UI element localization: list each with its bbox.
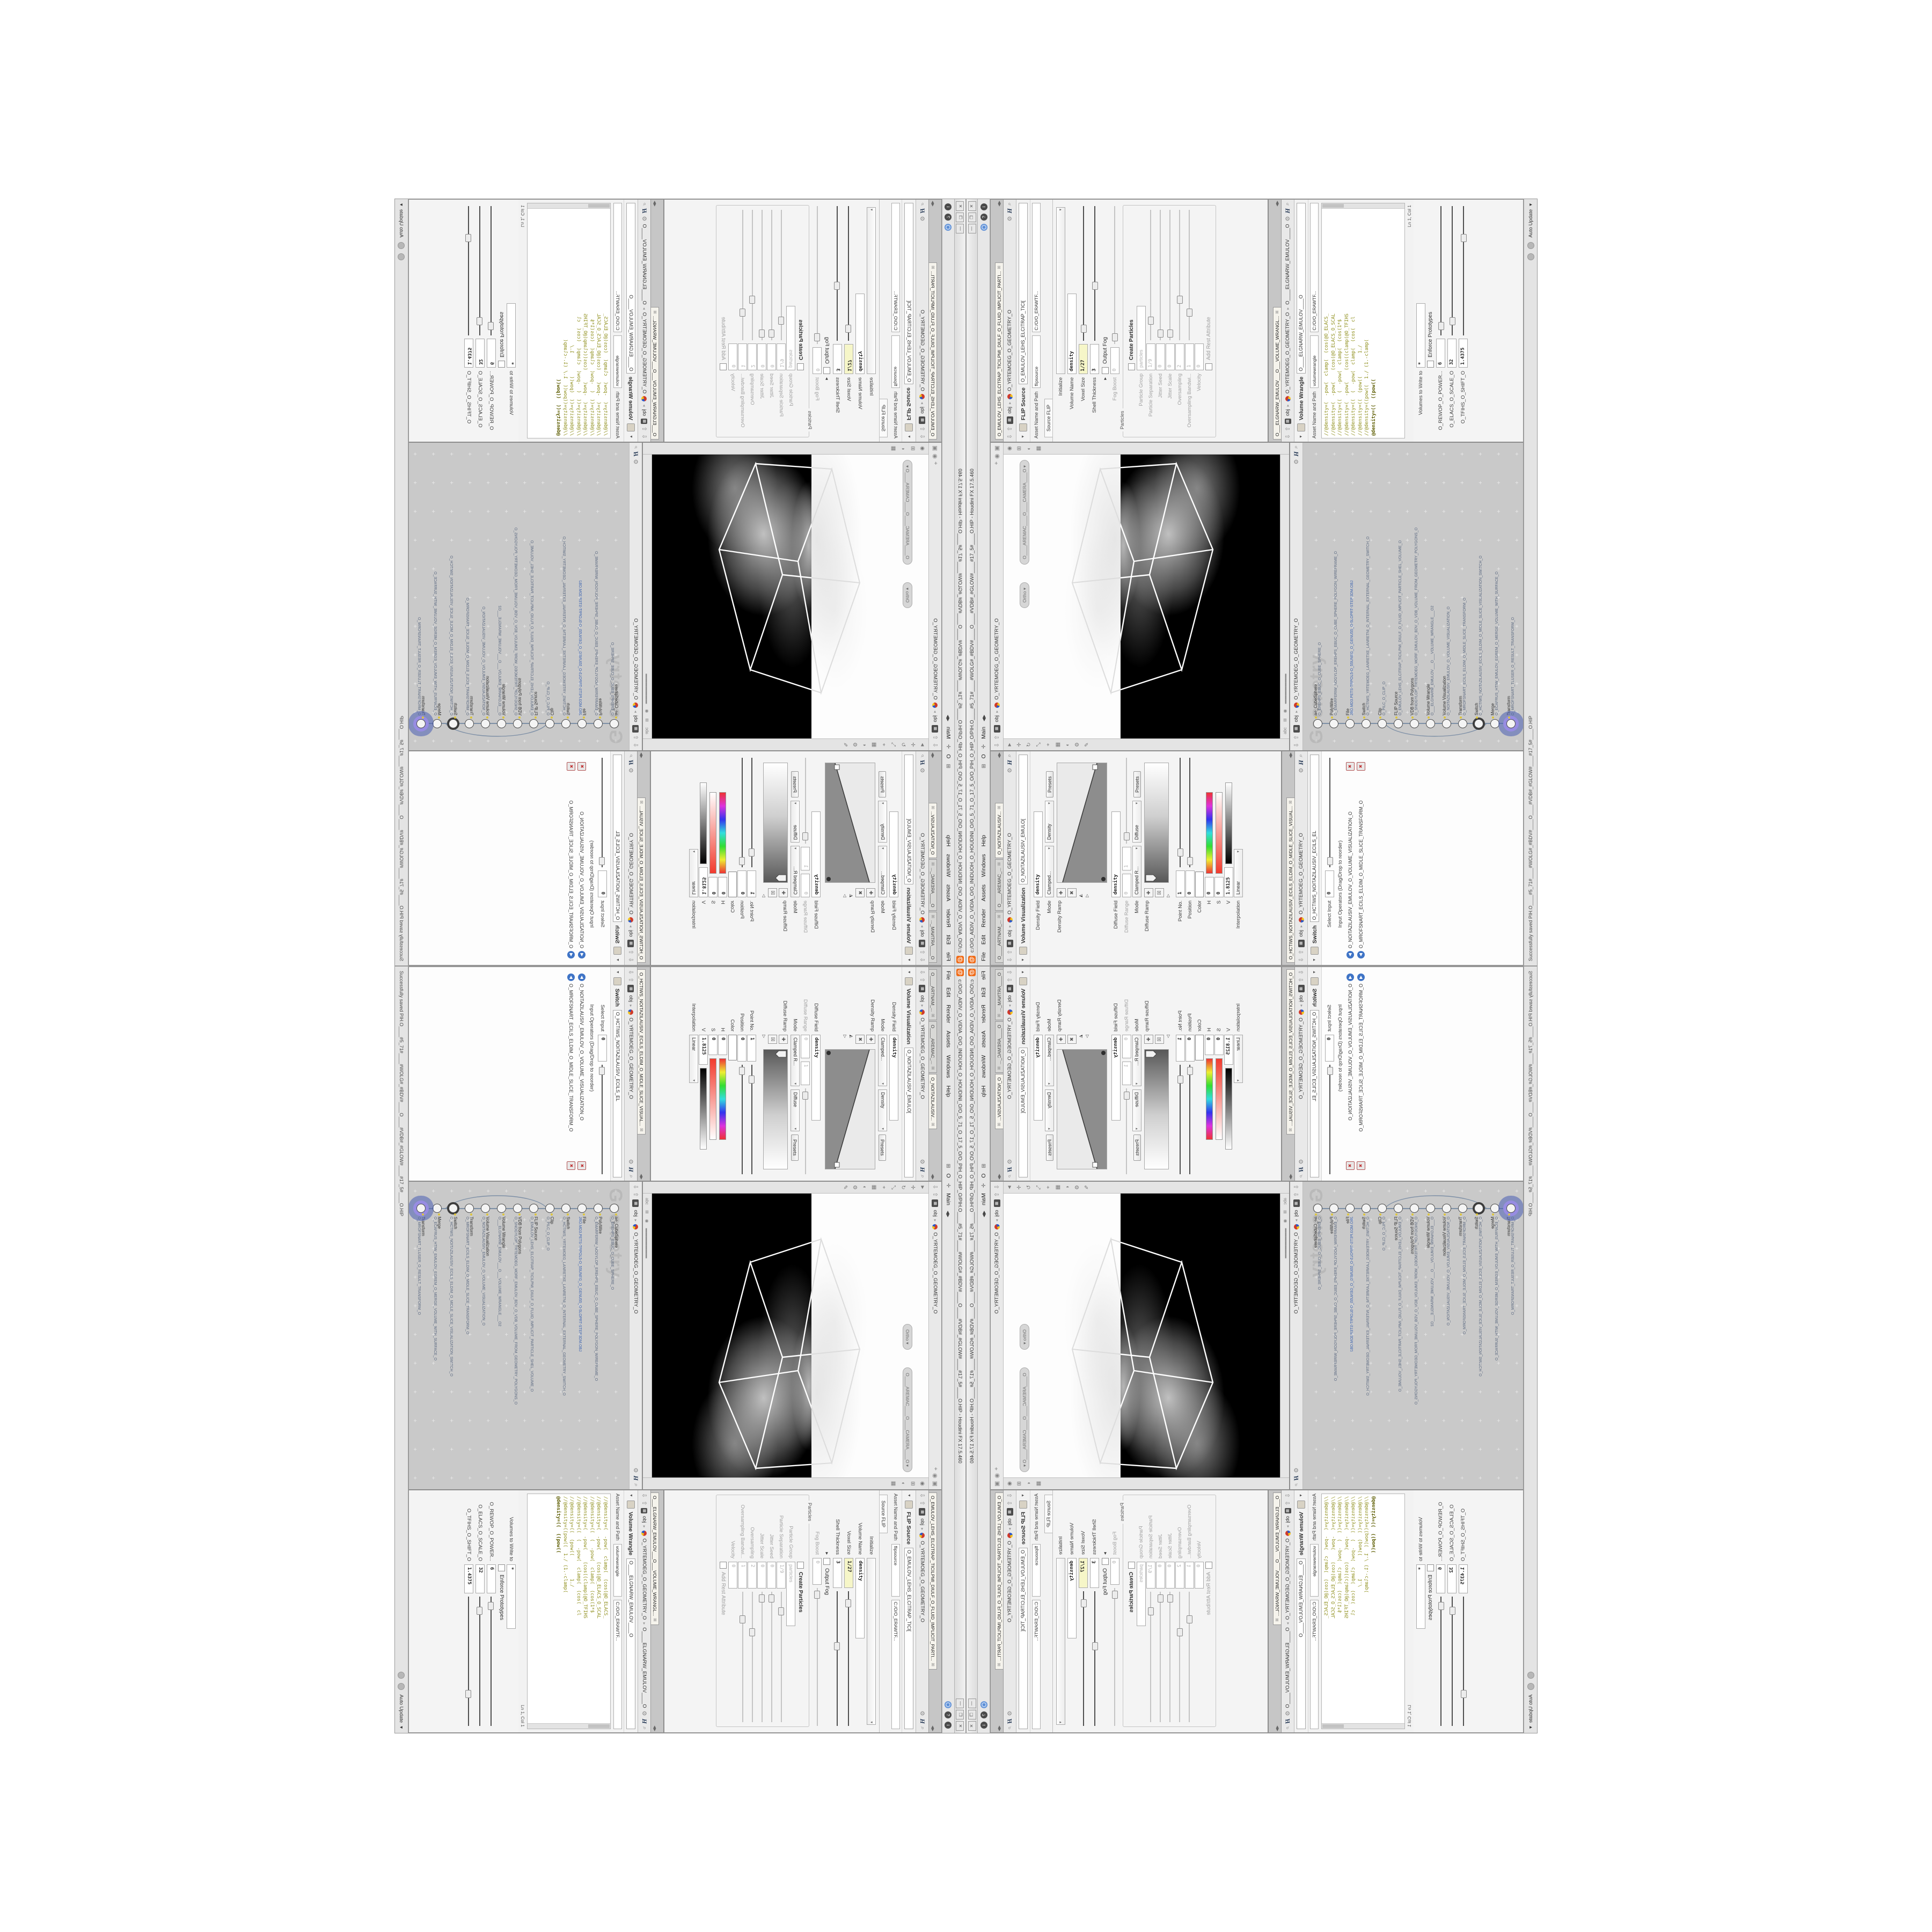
breadcrumb-root[interactable]: obj — [1007, 995, 1013, 1002]
diffuse-mode-dropdown[interactable]: Clamped R... — [791, 846, 800, 897]
draw-icon[interactable]: ✎ — [842, 1185, 848, 1189]
layout-icon[interactable]: ⊞ — [1016, 446, 1022, 450]
history-forward-icon[interactable]: ⇧ — [993, 735, 1000, 740]
diffuse-range-max-input[interactable]: 1 — [801, 847, 810, 870]
handles-icon[interactable]: ⌖ — [881, 1186, 887, 1189]
gear-icon[interactable]: ⚙ — [627, 1159, 634, 1165]
network-node[interactable]: Transform O_MROFSNART_ECILS_ELDIM_O_MIDL… — [1454, 445, 1470, 745]
network-node[interactable]: Merge O_ECAFRUS_HTIW_EMULOV_EGREM_O_MERG… — [1487, 1187, 1503, 1487]
network-node[interactable]: VDB from Polygons O_SNOGYLOP_YRTEMOEG_MO… — [1406, 1187, 1422, 1487]
color-swatch[interactable] — [728, 872, 737, 897]
voxel-size-input[interactable]: 1/27 — [1079, 1558, 1088, 1588]
tab-close-icon[interactable]: ☒ — [1289, 801, 1293, 804]
radar-icon[interactable]: ◉ — [993, 1473, 1000, 1479]
breadcrumb-geometry[interactable]: O_YRTEMOEG_O_GEOMETRY_O — [1007, 310, 1013, 391]
ortho-pill[interactable]: Ortho ▾ — [903, 582, 912, 608]
view-icon[interactable]: ◉ — [919, 1481, 925, 1486]
snap-icon[interactable]: ▦ — [871, 742, 877, 747]
density-field-input[interactable]: density — [1034, 1035, 1043, 1121]
breadcrumb-root[interactable]: obj — [919, 1518, 925, 1525]
shift-slider[interactable] — [466, 206, 472, 335]
power-slider[interactable] — [1438, 206, 1444, 335]
network-node[interactable]: Switch O_HCTIWS_YRTEMOEG_LANRETXE_LANRET… — [1358, 1187, 1374, 1487]
hue-input[interactable]: 0 — [1205, 1035, 1214, 1055]
shell-thickness-input[interactable]: 3 — [1090, 1558, 1099, 1588]
create-particles-checkbox[interactable] — [1128, 1562, 1135, 1569]
breadcrumb-wrangle[interactable]: O____ELGNARW_EMULOV____O — [1285, 1627, 1291, 1708]
jitter-scale-input[interactable]: 0 — [1166, 1562, 1175, 1589]
tab-close-icon[interactable]: ☒ — [931, 806, 935, 809]
diffuse-range-slider[interactable] — [802, 758, 809, 844]
scrollbar[interactable]: ▬▬▬▬▬▬▬ — [645, 1228, 650, 1258]
node-shape[interactable] — [1378, 1204, 1387, 1213]
menu-assets[interactable]: Assets — [980, 884, 987, 902]
tab-close-icon[interactable]: ☒ — [931, 862, 935, 866]
menu-assets[interactable]: Assets — [945, 1030, 952, 1048]
breadcrumb-geometry[interactable]: O_YRTEMOEG_O_GEOMETRY_O — [633, 1232, 639, 1314]
breadcrumb-geometry[interactable]: O_YRTEMOEG_O_GEOMETRY_O — [1285, 312, 1291, 394]
search-icon[interactable]: ⌕ — [919, 202, 926, 206]
handles-icon[interactable]: ⌖ — [1045, 1186, 1051, 1189]
oversampling-bandwidth-input[interactable]: 1 — [1185, 1562, 1194, 1589]
menu-edit[interactable]: Edit — [980, 935, 987, 945]
voxel-size-input[interactable]: 1/27 — [844, 1558, 853, 1588]
breadcrumb-root[interactable]: obj — [919, 407, 925, 414]
shell-thickness-slider[interactable] — [1092, 206, 1098, 341]
initialize-dropdown[interactable] — [1056, 1558, 1065, 1725]
input-operator-row[interactable]: ◀ O_NOITAZILAUSIV_EMULOV_O_VOLUME_VISUAL… — [576, 968, 587, 1177]
breadcrumb-root[interactable]: obj — [633, 1210, 639, 1217]
tab-volume-wrangle[interactable]: O___ELGNARW_EMULOV___O___VOLUME_WRANGL..… — [651, 307, 659, 440]
minimize-button[interactable]: — — [956, 224, 964, 233]
breadcrumb-geometry[interactable]: O_YRTEMOEG_O_GEOMETRY_O — [1007, 1018, 1013, 1099]
radar-icon[interactable] — [980, 224, 987, 231]
hue-gradient-slider[interactable] — [720, 792, 727, 874]
gear-icon[interactable]: ⚙ — [1284, 216, 1291, 222]
node-shape[interactable] — [1442, 719, 1451, 728]
power-slider[interactable] — [1438, 1597, 1444, 1726]
position-slider[interactable] — [739, 758, 745, 867]
scrollbar[interactable]: ▬▬▬▬▬▬▬ — [645, 674, 650, 704]
breadcrumb-root[interactable]: obj — [1298, 995, 1304, 1002]
tab-mantra[interactable]: O____ARTNAM_...☒ — [995, 969, 1003, 1020]
network-node[interactable]: PolyWire O_EMARFERIW_NOGYLOP_EREHPS_EBUC… — [1326, 1187, 1342, 1487]
density-ramp-widget[interactable] — [1057, 763, 1107, 883]
diffuse-presets-dropdown[interactable]: Diffuse — [791, 801, 800, 843]
search-icon[interactable]: ⌕ — [1006, 202, 1013, 206]
tab-scroll-arrows[interactable]: ◀▶ — [931, 1725, 935, 1731]
input-operator-row[interactable]: ◀ O_NOITAZILAUSIV_EMULOV_O_VOLUME_VISUAL… — [1345, 755, 1356, 964]
search-icon[interactable]: ⌕ — [641, 1726, 648, 1730]
ramp-add-point-button[interactable]: ✚ — [1144, 888, 1153, 897]
menu-help[interactable]: Help — [980, 835, 987, 847]
network-node[interactable]: Transform O_MROFSNART_TLUSER_O_RESULT_TR… — [1503, 445, 1519, 745]
search-icon[interactable]: ⌕ — [632, 1483, 639, 1487]
oversampling-slider[interactable] — [1176, 1592, 1183, 1722]
power-input[interactable]: 6 — [487, 1564, 496, 1593]
tab-mantra[interactable]: O____ARTNAM_...☒ — [995, 912, 1003, 963]
scale-slider[interactable] — [477, 1597, 484, 1726]
breadcrumb-geometry[interactable]: O_YRTEMOEG_O_GEOMETRY_O — [1285, 1539, 1291, 1620]
output-fog-checkbox[interactable] — [1102, 1558, 1109, 1565]
asset-name-field[interactable]: volumewrangle — [1310, 1544, 1319, 1597]
history-back-icon[interactable]: ⇩ — [632, 1184, 639, 1189]
network-node[interactable]: Switch O_HCTIWS_NOITAZILAUSIV_ECILS_ELDI… — [1470, 1187, 1487, 1487]
tab-close-icon[interactable]: ☒ — [997, 266, 1001, 269]
node-shape[interactable] — [530, 1204, 539, 1213]
history-forward-icon[interactable]: ⇧ — [641, 427, 648, 431]
draw-icon[interactable]: ✎ — [842, 742, 848, 747]
tab-scroll-arrows[interactable]: ◀▶ — [653, 1725, 657, 1731]
voxel-size-slider[interactable] — [1080, 206, 1087, 341]
tab-close-icon[interactable]: ☒ — [931, 1123, 935, 1126]
info-icon[interactable]: i — [945, 203, 952, 210]
grid-icon[interactable]: ▦ — [890, 1481, 896, 1486]
search-icon[interactable]: ⌕ — [919, 1726, 926, 1730]
history-back-icon[interactable]: ⇩ — [932, 743, 939, 748]
diffuse-range-max-input[interactable]: 1 — [801, 1062, 810, 1085]
scale-input[interactable]: 32 — [1447, 339, 1457, 368]
network-node[interactable]: Transform O_MROFSNART_TLUSER_O_RESULT_TR… — [1503, 1187, 1519, 1487]
ramp-delete-point-button[interactable]: ☒ — [1155, 1035, 1164, 1044]
tab-close-icon[interactable]: ☒ — [1275, 1618, 1279, 1621]
jitter-scale-slider[interactable] — [759, 210, 765, 340]
grid-icon[interactable]: ▦ — [890, 446, 896, 451]
input-operator-row[interactable]: ◀ O_MROFSNART_ECILS_ELDIM_O_MIDLE_SLICE_… — [566, 755, 576, 964]
node-name-field[interactable]: O_HCTIWS_NOITAZILAUSIV_ECILS_EL — [613, 1010, 622, 1177]
node-name-field[interactable]: O____ELGNARW_EMULOV____O — [1297, 1558, 1306, 1729]
breadcrumb-geometry[interactable]: O_YRTEMOEG_O_GEOMETRY_O — [1298, 1018, 1304, 1099]
history-forward-icon[interactable]: ⇧ — [1284, 1501, 1291, 1505]
tab-volume-wrangle[interactable]: O___ELGNARW_EMULOV___O___VOLUME_WRANGL..… — [1273, 307, 1281, 440]
ramp-flip-icon[interactable]: ◭ — [849, 888, 854, 897]
density-field-input[interactable]: density — [889, 811, 898, 897]
gear-icon[interactable]: ⚙ — [1006, 1711, 1013, 1716]
input-link-icon[interactable]: ◀ — [578, 951, 586, 958]
history-back-icon[interactable]: ⇩ — [993, 1184, 1000, 1189]
breadcrumb-wrangle[interactable]: O____ELGNARW_EMULOV____O — [1285, 224, 1291, 304]
network-node[interactable]: Merge O_ECAFRUS_HTIW_EMULOV_EGREM_O_MERG… — [1487, 445, 1503, 745]
node-shape[interactable] — [1442, 1204, 1451, 1213]
viewport-stage[interactable]: O____AREMAC____O____CAMERA____O ▾ Ortho … — [1004, 1194, 1289, 1477]
initialize-dropdown[interactable] — [867, 1558, 876, 1725]
ramp-expand-icon[interactable]: ▷ — [843, 888, 847, 897]
eye-icon[interactable]: ◉ — [645, 709, 650, 713]
tab-visualization[interactable]: O_NOITAZILAUSIV...☒ — [995, 803, 1003, 858]
shell-thickness-input[interactable]: 3 — [833, 1558, 842, 1588]
scrollbar[interactable]: ▬▬▬▬▬▬▬ — [1283, 1228, 1287, 1258]
tab-switch[interactable]: O_HCTIWS_NOITAZILAUSIV_ECILS_ELDIM_O_MID… — [638, 797, 646, 963]
oversampling-bandwidth-slider[interactable] — [740, 1592, 746, 1722]
voxel-size-slider[interactable] — [846, 1591, 852, 1726]
power-input[interactable]: 6 — [1436, 339, 1445, 368]
density-ramp-widget[interactable] — [825, 763, 875, 883]
breadcrumb-geometry[interactable]: O_YRTEMOEG_O_GEOMETRY_O — [641, 312, 647, 394]
tab-camera[interactable]: O____AREMAC_...☒ — [929, 859, 937, 911]
menu-assets[interactable]: Assets — [945, 884, 952, 902]
velocity-input[interactable]: 0 — [729, 343, 738, 370]
breadcrumb-root[interactable]: obj — [633, 715, 639, 722]
node-name-field[interactable]: O_NOITAZILAUSIV_EMULO[ — [1019, 755, 1028, 884]
asset-path-field[interactable]: C:/O/O_ERAWTF... — [1310, 203, 1319, 332]
code-scrollbar[interactable] — [1322, 203, 1404, 209]
diffuse-range-slider[interactable] — [802, 1088, 809, 1174]
input-link-icon[interactable]: ◀ — [578, 974, 586, 981]
color-swatch[interactable] — [1195, 872, 1204, 897]
asset-path-field[interactable]: C:/O/O_ERAWTF... — [1310, 1600, 1319, 1729]
voxel-size-slider[interactable] — [1080, 1591, 1087, 1726]
jitter-scale-input[interactable]: 0 — [758, 343, 767, 370]
shift-input[interactable]: 1.4375 — [1459, 1564, 1468, 1593]
search-icon[interactable]: ⌕ — [627, 1175, 634, 1178]
close-button[interactable]: ✕ — [956, 1721, 964, 1731]
breadcrumb-root[interactable]: obj — [1285, 1516, 1291, 1523]
pin-icon[interactable]: ⌖ — [993, 462, 1000, 465]
volume-name-input[interactable]: density — [1067, 1558, 1077, 1638]
node-name-field[interactable]: O____ELGNARW_EMULOV____O — [626, 203, 635, 374]
diffuse-field-input[interactable]: density — [811, 811, 821, 897]
velocity-input[interactable]: 0 — [1195, 1562, 1204, 1589]
ramp-expand-icon[interactable]: ▷ — [762, 888, 766, 897]
fog-boost-input[interactable]: 0 — [1110, 347, 1119, 374]
camera-menu-pill[interactable]: O____AREMAC____O____CAMERA____O ▾ — [1020, 460, 1029, 565]
tab-scroll-arrows[interactable]: ◀▶ — [653, 201, 657, 207]
history-back-icon[interactable]: ⇩ — [919, 434, 926, 439]
density-presets-button[interactable]: Presets — [1046, 771, 1053, 797]
rotate-icon[interactable]: ↻ — [900, 1185, 906, 1189]
radar-icon[interactable]: ◉ — [932, 1473, 939, 1479]
search-icon[interactable]: ⌕ — [1298, 754, 1305, 757]
node-shape[interactable] — [562, 719, 571, 728]
tab-camera[interactable]: O____AREMAC_...☒ — [995, 1021, 1003, 1073]
oversampling-bandwidth-slider[interactable] — [740, 210, 746, 340]
asset-path-field[interactable]: C:/O/O_ERAWTF... — [1032, 203, 1041, 332]
code-scrollbar[interactable] — [528, 1723, 610, 1729]
select-icon[interactable]: ► — [1007, 1185, 1013, 1190]
tab-scroll-arrows[interactable]: ◀▶ — [639, 1174, 643, 1180]
tab-scroll-arrows[interactable]: ◀▶ — [997, 201, 1001, 207]
scale-input[interactable]: 32 — [475, 1564, 485, 1593]
select-input-slider[interactable] — [599, 1065, 606, 1174]
node-shape[interactable] — [1345, 1204, 1355, 1213]
cook-mode-selector[interactable]: Auto Update ▾ — [1528, 203, 1534, 238]
scale-icon[interactable]: ⤡ — [1036, 1185, 1042, 1190]
shade-icon[interactable]: ◐ — [861, 1185, 867, 1189]
vex-code-editor[interactable]: //@density=( -pow( clamp( (cos(@O_ELACS_… — [527, 1494, 611, 1729]
breadcrumb-root[interactable]: obj — [1293, 1210, 1299, 1217]
fog-boost-slider[interactable] — [814, 1588, 821, 1726]
menu-help[interactable]: Help — [945, 1086, 952, 1097]
shell-thickness-slider[interactable] — [835, 206, 841, 341]
breadcrumb-geometry[interactable]: O_YRTEMOEG_O_GEOMETRY_O — [919, 310, 925, 391]
ramp-delete-point-button[interactable]: ✖ — [855, 1035, 865, 1044]
history-back-icon[interactable]: ⇩ — [1006, 434, 1013, 439]
history-forward-icon[interactable]: ⇧ — [1284, 427, 1291, 431]
hue-input[interactable]: 0 — [719, 877, 728, 897]
network-node[interactable]: Volume Wrangle O___ELGNARW_EMULOV___O___… — [494, 1187, 510, 1487]
history-back-icon[interactable]: ⇩ — [919, 957, 926, 962]
asset-path-field[interactable]: C:/O/O_ERAWTF... — [613, 203, 622, 332]
diffuse-range-max-input[interactable]: 1 — [1122, 1062, 1131, 1085]
menu-file[interactable]: File — [945, 952, 952, 961]
breadcrumb-wrangle[interactable]: O____ELGNARW_EMULOV____O — [641, 1627, 647, 1708]
menu-file[interactable]: File — [945, 971, 952, 980]
shift-slider[interactable] — [1460, 1597, 1467, 1726]
jitter-seed-slider[interactable] — [769, 210, 775, 340]
desktop-tab-main[interactable]: Main — [980, 1193, 987, 1205]
diffuse-presets-button[interactable]: Presets — [792, 771, 799, 797]
node-shape[interactable] — [481, 1204, 491, 1213]
select-input-field[interactable]: 0 — [598, 870, 607, 897]
tab-close-icon[interactable]: ☒ — [653, 1618, 657, 1621]
rotate-icon[interactable]: ↻ — [1026, 1185, 1032, 1189]
history-forward-icon[interactable]: ⇧ — [1293, 1192, 1300, 1197]
history-forward-icon[interactable]: ⇧ — [993, 1192, 1000, 1197]
cube-icon[interactable]: ▣ — [993, 445, 1000, 451]
network-node[interactable]: Transform O_MROFSNART_ECILS_ELDIM_O_MIDL… — [462, 445, 478, 745]
network-node[interactable]: PolyWire O_EMARFERIW_NOGYLOP_EREHPS_EBUC… — [1326, 445, 1342, 745]
asset-name-field[interactable]: volumewrangle — [1310, 335, 1319, 388]
ramp-delete-point-button[interactable]: ✖ — [1067, 888, 1077, 897]
tab-flip-source[interactable]: O_EMULOV_LEHS_ELCITRAP_TICILPMI_DIULF_O_… — [929, 1492, 937, 1670]
add-rest-attribute-checkbox[interactable] — [1205, 1562, 1212, 1569]
breadcrumb-geometry[interactable]: O_YRTEMOEG_O_GEOMETRY_O — [932, 618, 938, 700]
particle-group-input[interactable]: particles — [787, 306, 796, 370]
node-shape[interactable] — [1474, 1204, 1483, 1213]
asset-name-field[interactable]: volumewrangle — [613, 1544, 622, 1597]
asset-name-field[interactable]: flipsource — [891, 335, 900, 388]
node-name-field[interactable]: O_HCTIWS_NOITAZILAUSIV_ECILS_EL — [613, 755, 622, 922]
snapshot-icon[interactable]: ◐ — [900, 447, 906, 450]
jitter-scale-input[interactable]: 0 — [1166, 343, 1175, 370]
ramp-flip-icon[interactable]: ◭ — [849, 1035, 854, 1044]
menu-windows[interactable]: Windows — [980, 854, 987, 877]
input-link-icon[interactable]: ◀ — [1357, 951, 1365, 958]
breadcrumb-geometry[interactable]: O_YRTEMOEG_O_GEOMETRY_O — [628, 833, 634, 914]
gear-icon[interactable]: ⚙ — [1298, 1159, 1305, 1165]
cook-mode-selector[interactable]: Auto Update ▾ — [399, 1694, 405, 1729]
history-back-icon[interactable]: ⇩ — [1006, 957, 1013, 962]
tab-flip-source[interactable]: O_EMULOV_LEHS_ELCITRAP_TICILPMI_DIULF_O_… — [995, 1492, 1003, 1670]
diffuse-presets-dropdown[interactable]: Diffuse — [791, 1089, 800, 1131]
jitter-seed-input[interactable]: 0 — [767, 343, 777, 370]
jitter-seed-slider[interactable] — [1157, 1592, 1163, 1722]
select-input-slider[interactable] — [1327, 758, 1333, 867]
output-fog-checkbox[interactable] — [824, 367, 831, 374]
asset-path-field[interactable]: C:/O/O_ERAWTF... — [613, 1600, 622, 1729]
viewport-stage[interactable]: O____AREMAC____O____CAMERA____O ▾ Ortho … — [643, 455, 928, 738]
diffuse-range-min-input[interactable]: 0 — [801, 1035, 810, 1058]
tab-volume-wrangle[interactable]: O___ELGNARW_EMULOV___O___VOLUME_WRANGL..… — [1273, 1492, 1281, 1625]
network-node[interactable]: ae_CubeSphere O_EREHPS_EBUC_O_CUBE_SPHER… — [606, 445, 623, 745]
point-no-input[interactable]: 1 — [1176, 870, 1185, 897]
input-link-icon[interactable]: ◀ — [567, 951, 575, 958]
scale-input[interactable]: 32 — [1447, 1564, 1457, 1593]
node-shape[interactable] — [1394, 719, 1403, 728]
gear-icon[interactable]: ⚙ — [632, 459, 639, 465]
oversampling-input[interactable]: 2 — [748, 343, 757, 370]
node-name-field[interactable]: O_NOITAZILAUSIV_EMULO[ — [904, 755, 913, 884]
node-shape[interactable] — [1490, 719, 1499, 728]
diffuse-ramp-widget[interactable] — [763, 763, 788, 883]
view-icon[interactable]: ◉ — [919, 446, 925, 451]
history-forward-icon[interactable]: ⇧ — [1006, 977, 1013, 982]
desktop-tab-o[interactable]: O — [945, 1174, 952, 1178]
gear-icon[interactable]: ⚙ — [641, 216, 648, 222]
network-node[interactable]: Switch O_HCTIWS_NOITAZILAUSIV_ECILS_ELDI… — [445, 1187, 462, 1487]
menu-edit[interactable]: Edit — [945, 935, 952, 945]
gear-icon[interactable]: ⚙ — [1284, 1711, 1291, 1716]
tab-close-icon[interactable]: ☒ — [997, 1123, 1001, 1126]
fog-boost-input[interactable]: 0 — [1110, 1558, 1119, 1585]
breadcrumb-geometry[interactable]: O_YRTEMOEG_O_GEOMETRY_O — [932, 1232, 938, 1314]
node-shape[interactable] — [1362, 719, 1371, 728]
network-node[interactable]: File JBO.MD3.PETS-TRPOL5-O_55UNEG_O_GENU… — [574, 445, 590, 745]
grid-icon[interactable]: ▦ — [1036, 1481, 1042, 1486]
initialize-dropdown[interactable] — [1056, 207, 1065, 374]
breadcrumb-geometry[interactable]: O_YRTEMOEG_O_GEOMETRY_O — [919, 1018, 925, 1099]
history-forward-icon[interactable]: ⇧ — [932, 735, 939, 740]
breadcrumb-geometry[interactable]: O_YRTEMOEG_O_GEOMETRY_O — [628, 1018, 634, 1099]
asset-name-field[interactable]: flipsource — [1032, 335, 1041, 388]
radar-icon[interactable] — [945, 224, 952, 231]
maximize-button[interactable]: ❐ — [968, 213, 976, 222]
hue-input[interactable]: 0 — [1205, 877, 1214, 897]
vex-code-editor[interactable]: //@density=( -pow( clamp( (cos(@O_ELACS_… — [1321, 203, 1405, 438]
tab-scroll-arrows[interactable]: ◀▶ — [931, 1174, 935, 1180]
network-node[interactable]: Merge O_ECAFRUS_HTIW_EMULOV_EGREM_O_MERG… — [429, 1187, 445, 1487]
breadcrumb-root[interactable]: obj — [919, 930, 925, 937]
position-input[interactable]: 0 — [1185, 870, 1195, 897]
scale-icon[interactable]: ⤡ — [1036, 743, 1042, 747]
select-icon[interactable]: ► — [1007, 742, 1013, 748]
create-particles-checkbox[interactable] — [797, 363, 804, 370]
quadview-icon[interactable]: ⊞ — [1283, 1210, 1287, 1214]
node-shape[interactable] — [1506, 1204, 1516, 1213]
network-node[interactable]: VDB from Polygons O_SNOGYLOP_YRTEMOEG_MO… — [1406, 445, 1422, 745]
color-swatch[interactable] — [1195, 1035, 1204, 1060]
asset-path-field[interactable]: C:/O/O_ERAWTF... — [891, 1600, 900, 1729]
tab-close-icon[interactable]: ☒ — [931, 1066, 935, 1070]
diffuse-presets-button[interactable]: Presets — [792, 1135, 799, 1161]
tab-visualization[interactable]: O_NOITAZILAUSIV...☒ — [929, 803, 937, 858]
node-shape[interactable] — [481, 719, 491, 728]
density-presets-dropdown[interactable]: Density — [1045, 1089, 1054, 1131]
oversampling-bandwidth-slider[interactable] — [1186, 1592, 1192, 1722]
diffuse-presets-button[interactable]: Presets — [1133, 1135, 1141, 1161]
fog-boost-slider[interactable] — [1111, 1588, 1118, 1726]
remove-input-icon[interactable]: ✖ — [1357, 1161, 1365, 1170]
help-icon[interactable]: ? — [945, 214, 952, 221]
value-input[interactable]: 1.8125 — [699, 1035, 708, 1065]
density-presets-button[interactable]: Presets — [1046, 1135, 1053, 1161]
velocity-input[interactable]: 0 — [729, 1562, 738, 1589]
interpolation-dropdown[interactable]: Linear — [1234, 849, 1243, 897]
tab-close-icon[interactable]: ☒ — [997, 1066, 1001, 1070]
gear-icon[interactable]: ⚙ — [627, 768, 634, 773]
asset-name-field[interactable]: volumewrangle — [613, 335, 622, 388]
select-input-field[interactable]: 0 — [598, 1035, 607, 1062]
ramp-add-point-button[interactable]: ✚ — [1057, 1035, 1066, 1044]
asset-name-field[interactable]: flipsource — [1032, 1544, 1041, 1597]
network-node[interactable]: Transform O_MROFSNART_TLUSER_O_RESULT_TR… — [413, 445, 429, 745]
history-forward-icon[interactable]: ⇧ — [919, 427, 926, 431]
quadview-icon[interactable]: ⊞ — [645, 1210, 650, 1214]
menu-file[interactable]: File — [980, 971, 987, 980]
node-name-field[interactable]: O_EMULOV_LEHS_ELCITRAP_TICI[ — [1019, 1548, 1028, 1729]
breadcrumb-geometry[interactable]: O_YRTEMOEG_O_GEOMETRY_O — [994, 618, 1000, 700]
breadcrumb-root[interactable]: obj — [1007, 407, 1013, 414]
